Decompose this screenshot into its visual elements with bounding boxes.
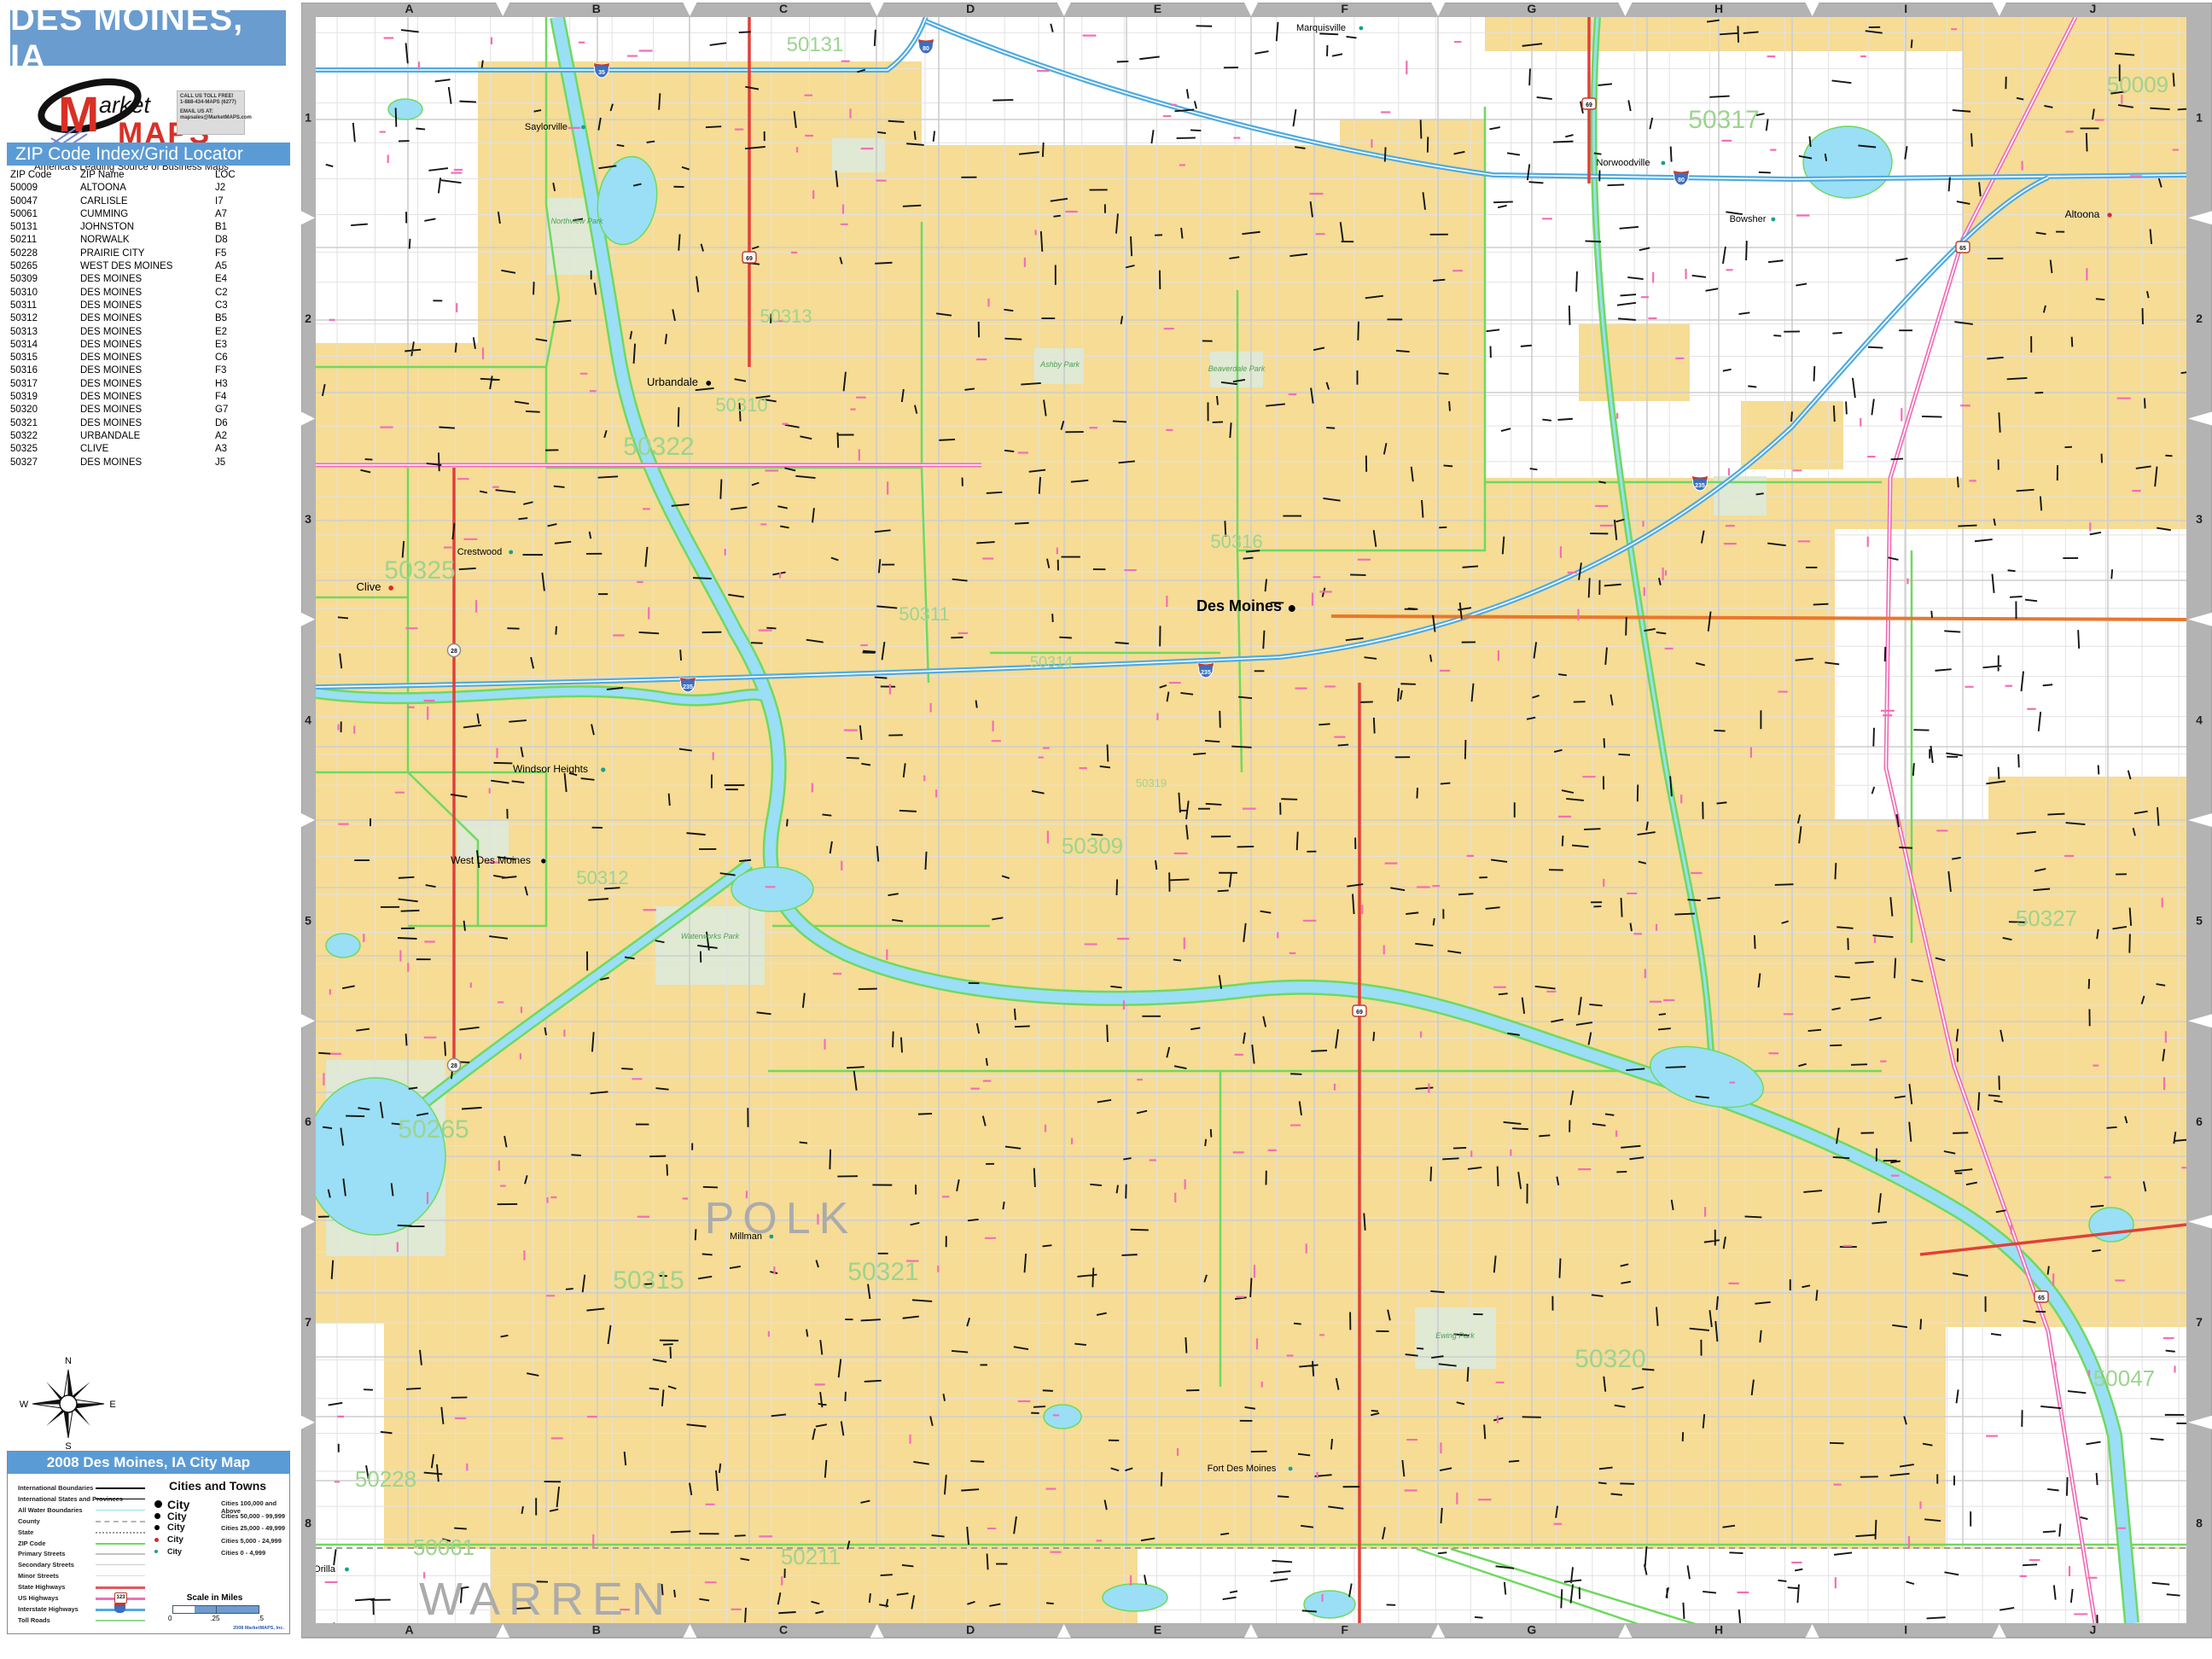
city-dot-icon bbox=[601, 767, 605, 771]
zip-index-row: 50310DES MOINESC2 bbox=[10, 287, 292, 300]
city-dot-icon bbox=[1662, 161, 1666, 166]
zip-code-label: 50309 bbox=[1062, 833, 1123, 859]
legend-body: International BoundariesInternational St… bbox=[8, 1474, 289, 1633]
city-label: Bowsher bbox=[1730, 214, 1767, 224]
zip-code-label: 50009 bbox=[2107, 72, 2168, 97]
legend-item-label: All Water Boundaries bbox=[18, 1506, 83, 1514]
grid-letter: I bbox=[1904, 3, 1907, 15]
svg-text:28: 28 bbox=[451, 1063, 457, 1069]
legend-item-label: US Highways bbox=[18, 1594, 59, 1602]
cities-and-towns-header: Cities and Towns bbox=[151, 1479, 284, 1493]
contact-email: mapsales@MarketMAPS.com bbox=[180, 115, 242, 121]
zip-index-header: ZIP Code Index/Grid Locator bbox=[7, 143, 290, 166]
city-dot-icon bbox=[154, 1550, 158, 1553]
grid-number: 8 bbox=[305, 1516, 311, 1529]
grid-number: 5 bbox=[2196, 914, 2203, 928]
svg-text:69: 69 bbox=[746, 256, 753, 262]
grid-number: 7 bbox=[2196, 1315, 2203, 1329]
grid-number: 8 bbox=[2196, 1516, 2203, 1529]
svg-text:65: 65 bbox=[1959, 246, 1966, 252]
city-dot-icon bbox=[1289, 605, 1295, 612]
city-label: Orilla bbox=[313, 1564, 336, 1575]
grid-number: 2 bbox=[305, 311, 311, 325]
compass-rose: N S W E bbox=[19, 1355, 118, 1451]
legend-item-swatch bbox=[96, 1510, 145, 1511]
compass-s: S bbox=[65, 1441, 71, 1451]
park-label: Waterworks Park bbox=[681, 932, 740, 940]
city-label: Urbandale bbox=[647, 375, 698, 388]
city-size-label: City bbox=[167, 1522, 185, 1533]
contact-phone: 1-888-434-MAPS (6277) bbox=[180, 100, 242, 106]
grid-letter: C bbox=[779, 1623, 788, 1637]
zip-code-label: 50317 bbox=[1688, 106, 1759, 134]
county-label: POLK bbox=[705, 1194, 858, 1243]
legend-item-label: Primary Streets bbox=[18, 1550, 65, 1557]
city-size-range: Cities 0 - 4,999 bbox=[221, 1549, 265, 1557]
legend-item-label: International Boundaries bbox=[18, 1484, 93, 1492]
legend-item-label: Interstate Highways bbox=[18, 1605, 79, 1613]
grid-letter: J bbox=[2090, 1623, 2097, 1637]
zip-index-row: 50309DES MOINESE4 bbox=[10, 273, 292, 286]
compass-w: W bbox=[20, 1400, 29, 1410]
zip-index-row: 50047CARLISLEI7 bbox=[10, 195, 292, 208]
city-dot-icon bbox=[388, 585, 393, 591]
zip-index-row: 50321DES MOINESD6 bbox=[10, 417, 292, 430]
zip-index-row: 50313DES MOINESE2 bbox=[10, 326, 292, 339]
state-route-shield-icon: 28 bbox=[448, 644, 461, 657]
grid-letter: E bbox=[1154, 1623, 1161, 1637]
zip-index-row: 50009ALTOONAJ2 bbox=[10, 182, 292, 195]
zip-code-label: 50265 bbox=[398, 1115, 469, 1144]
svg-text:65: 65 bbox=[2038, 1295, 2045, 1301]
city-label: Altoona bbox=[2065, 208, 2100, 220]
scale-numbers: 0.25.5 bbox=[168, 1615, 264, 1622]
zip-index-table: ZIP Code ZIP Name LOC 50009ALTOONAJ25004… bbox=[10, 169, 292, 469]
zip-index-row: 50211NORWALKD8 bbox=[10, 234, 292, 247]
col-zip-name: ZIP Name bbox=[80, 169, 215, 182]
zip-index-row: 50322URBANDALEA2 bbox=[10, 430, 292, 443]
zip-code-label: 50311 bbox=[899, 603, 950, 625]
grid-number: 4 bbox=[2196, 713, 2203, 726]
logo-m: M bbox=[58, 87, 99, 143]
city-dot-icon bbox=[154, 1500, 162, 1508]
zip-code-label: 50131 bbox=[787, 33, 844, 56]
zip-code-label: 50316 bbox=[1210, 531, 1262, 552]
compass-n: N bbox=[65, 1356, 72, 1366]
legend-item-label: State Highways bbox=[18, 1583, 65, 1591]
grid-letter: H bbox=[1714, 1623, 1723, 1637]
map-legend: 2008 Des Moines, IA City Map Internation… bbox=[7, 1451, 290, 1634]
grid-number: 1 bbox=[305, 111, 311, 125]
city-size-label: City bbox=[167, 1535, 183, 1545]
grid-number: 6 bbox=[2196, 1115, 2203, 1128]
grid-letter: G bbox=[1527, 1623, 1536, 1637]
legend-item-label: Secondary Streets bbox=[18, 1561, 74, 1569]
legend-item-swatch bbox=[96, 1553, 145, 1555]
city-size-range: Cities 50,000 - 99,999 bbox=[221, 1512, 285, 1520]
legend-title: 2008 Des Moines, IA City Map bbox=[8, 1452, 289, 1474]
city-dot-icon bbox=[1359, 26, 1364, 31]
logo-arket: arket bbox=[99, 92, 152, 118]
park-label: Ashby Park bbox=[1039, 360, 1080, 369]
city-dot-icon bbox=[345, 1568, 349, 1572]
contact-call-line: CALL US TOLL FREE! bbox=[180, 94, 242, 100]
legend-item-label: Toll Roads bbox=[18, 1616, 50, 1624]
map-canvas: 5013150313503105032250325503115031650314… bbox=[301, 3, 2212, 1649]
zip-code-label: 50319 bbox=[1136, 777, 1167, 789]
contact-box: CALL US TOLL FREE! 1-888-434-MAPS (6277)… bbox=[177, 90, 245, 135]
park-label: Ewing Park bbox=[1435, 1331, 1475, 1340]
zip-code-label: 50320 bbox=[1575, 1345, 1645, 1373]
grid-letter: F bbox=[1341, 1623, 1348, 1637]
grid-letter: B bbox=[592, 1623, 601, 1637]
svg-text:69: 69 bbox=[1356, 1010, 1363, 1016]
us-route-shield-icon: 65 bbox=[1956, 242, 1970, 253]
city-label: Windsor Heights bbox=[513, 763, 588, 775]
col-loc: LOC bbox=[215, 169, 266, 182]
svg-text:28: 28 bbox=[451, 649, 457, 655]
city-size-label: City bbox=[167, 1511, 187, 1522]
legend-item-label: County bbox=[18, 1517, 40, 1525]
city-dot-icon bbox=[509, 550, 513, 555]
legend-item-swatch bbox=[96, 1543, 145, 1545]
grid-number: 1 bbox=[2196, 111, 2203, 125]
zip-code-label: 50047 bbox=[2093, 1365, 2155, 1391]
city-dot-icon bbox=[154, 1513, 160, 1519]
grid-letter: A bbox=[405, 1623, 414, 1637]
city-label: West Des Moines bbox=[451, 854, 531, 866]
grid-number: 7 bbox=[305, 1315, 311, 1329]
us-route-shield-icon: 69 bbox=[1582, 98, 1596, 109]
grid-number: 5 bbox=[305, 914, 311, 928]
zip-index-row: 50317DES MOINESH3 bbox=[10, 378, 292, 391]
zip-index-row: 50265WEST DES MOINESA5 bbox=[10, 260, 292, 273]
zip-index-row: 50316DES MOINESF3 bbox=[10, 364, 292, 377]
legend-item-swatch bbox=[96, 1586, 145, 1589]
grid-letter: D bbox=[966, 1623, 975, 1637]
grid-letter: F bbox=[1341, 3, 1348, 15]
grid-letter: C bbox=[779, 3, 788, 15]
city-label: Crestwood bbox=[457, 547, 503, 557]
grid-letter: B bbox=[592, 3, 601, 15]
zip-code-label: 50061 bbox=[413, 1534, 474, 1560]
zip-code-label: 50327 bbox=[2016, 905, 2077, 931]
zip-index-row: 50325CLIVEA3 bbox=[10, 443, 292, 456]
legend-item-label: ZIP Code bbox=[18, 1540, 45, 1547]
zip-index-column-headers: ZIP Code ZIP Name LOC bbox=[10, 169, 292, 182]
svg-text:80: 80 bbox=[1678, 178, 1685, 183]
grid-letter: J bbox=[2090, 3, 2097, 15]
zip-index-row: 50314DES MOINESE3 bbox=[10, 339, 292, 352]
zip-index-row: 50312DES MOINESB5 bbox=[10, 312, 292, 325]
scale-title: Scale in Miles bbox=[170, 1593, 259, 1603]
grid-letter: E bbox=[1154, 3, 1161, 15]
zip-index-row: 50061CUMMINGA7 bbox=[10, 208, 292, 221]
zip-index-row: 50228PRAIRIE CITYF5 bbox=[10, 247, 292, 260]
legend-item-swatch bbox=[96, 1521, 145, 1522]
zip-code-label: 50313 bbox=[760, 306, 812, 327]
grid-number: 6 bbox=[305, 1115, 311, 1128]
zip-index-row: 50320DES MOINESG7 bbox=[10, 404, 292, 416]
compass-e: E bbox=[109, 1400, 115, 1410]
us-route-shield-icon: 65 bbox=[2034, 1291, 2048, 1302]
park-label: Northview Park bbox=[550, 217, 603, 225]
svg-text:235: 235 bbox=[1201, 670, 1211, 676]
legend-item-swatch bbox=[96, 1575, 145, 1576]
zip-code-label: 50325 bbox=[384, 556, 455, 585]
city-dot-icon bbox=[769, 1235, 773, 1239]
svg-text:35: 35 bbox=[598, 70, 605, 76]
grid-letter: G bbox=[1527, 3, 1536, 15]
city-dot-icon bbox=[154, 1525, 160, 1530]
city-dot-icon bbox=[706, 381, 711, 386]
grid-letter: A bbox=[405, 3, 414, 15]
grid-number: 4 bbox=[305, 713, 311, 726]
city-dot-icon bbox=[154, 1538, 159, 1542]
city-size-range: Cities 25,000 - 49,999 bbox=[221, 1524, 285, 1532]
page-title: DES MOINES, IA bbox=[10, 10, 286, 66]
city-dot-icon bbox=[1771, 218, 1775, 222]
grid-letter: H bbox=[1714, 3, 1723, 15]
zip-code-label: 50312 bbox=[576, 867, 628, 888]
county-label: WARREN bbox=[419, 1574, 673, 1625]
city-label: Clive bbox=[357, 580, 381, 593]
zip-code-label: 50310 bbox=[715, 394, 767, 416]
zip-code-label: 50228 bbox=[355, 1466, 416, 1492]
grid-letter: I bbox=[1904, 1623, 1907, 1637]
city-dot-icon bbox=[541, 859, 545, 863]
svg-text:80: 80 bbox=[923, 46, 929, 52]
grid-number: 3 bbox=[305, 512, 311, 526]
zip-index-row: 50131JOHNSTONB1 bbox=[10, 221, 292, 234]
svg-text:69: 69 bbox=[1586, 102, 1592, 108]
grid-number: 2 bbox=[2196, 311, 2203, 325]
scale-bar bbox=[172, 1605, 259, 1614]
des-moines-zip-map-poster: DES MOINES, IA M arket MAPS On Target. O… bbox=[0, 0, 2212, 1659]
legend-item-swatch bbox=[96, 1564, 145, 1565]
interstate-shield-icon bbox=[114, 1604, 125, 1613]
legend-item-label: Minor Streets bbox=[18, 1572, 59, 1580]
zip-code-label: 50321 bbox=[847, 1258, 918, 1286]
city-label: Des Moines bbox=[1196, 597, 1282, 614]
park-label: Beaverdale Park bbox=[1208, 364, 1266, 373]
city-label: Saylorville bbox=[525, 122, 568, 132]
svg-text:235: 235 bbox=[683, 684, 693, 690]
zip-index-row: 50311DES MOINESC3 bbox=[10, 300, 292, 312]
grid-number: 3 bbox=[2196, 512, 2203, 526]
state-route-shield-icon: 28 bbox=[448, 1059, 461, 1072]
us-route-shield-icon: 69 bbox=[742, 252, 756, 263]
legend-footnote: 2008 MarketMAPS, Inc. bbox=[233, 1626, 284, 1631]
city-label: Norwoodville bbox=[1597, 158, 1650, 168]
city-size-range: Cities 5,000 - 24,999 bbox=[221, 1537, 282, 1545]
legend-item-label: State bbox=[18, 1528, 33, 1536]
zip-index-row: 50319DES MOINESF4 bbox=[10, 391, 292, 404]
svg-text:235: 235 bbox=[1695, 483, 1705, 489]
city-label: Marquisville bbox=[1296, 23, 1346, 33]
zip-code-label: 50314 bbox=[1030, 654, 1073, 671]
zip-code-label: 50211 bbox=[781, 1544, 841, 1569]
zip-index-row: 50327DES MOINESJ5 bbox=[10, 457, 292, 469]
city-label: Millman bbox=[730, 1231, 762, 1242]
legend-item-swatch bbox=[96, 1487, 145, 1489]
legend-item-swatch bbox=[96, 1532, 145, 1534]
map-frame: 5013150313503105032250325503115031650314… bbox=[301, 3, 2212, 1649]
col-zip-code: ZIP Code bbox=[10, 169, 80, 182]
city-label: Fort Des Moines bbox=[1208, 1464, 1277, 1474]
city-dot-icon bbox=[2107, 212, 2111, 217]
city-dot-icon bbox=[581, 125, 585, 130]
zip-index-row: 50315DES MOINESC6 bbox=[10, 352, 292, 364]
zip-code-label: 50322 bbox=[623, 433, 694, 461]
us-route-shield-icon: 123 bbox=[114, 1592, 127, 1604]
zip-code-label: 50315 bbox=[613, 1266, 684, 1295]
city-dot-icon bbox=[1289, 1467, 1293, 1471]
legend-item-swatch bbox=[96, 1499, 145, 1499]
grid-letter: D bbox=[966, 3, 975, 15]
us-route-shield-icon: 69 bbox=[1353, 1005, 1366, 1016]
legend-item-swatch bbox=[96, 1620, 145, 1621]
city-size-label: City bbox=[167, 1547, 182, 1556]
contact-email-label: EMAIL US AT: bbox=[180, 109, 242, 115]
sidebar: DES MOINES, IA M arket MAPS On Target. O… bbox=[0, 0, 297, 1659]
